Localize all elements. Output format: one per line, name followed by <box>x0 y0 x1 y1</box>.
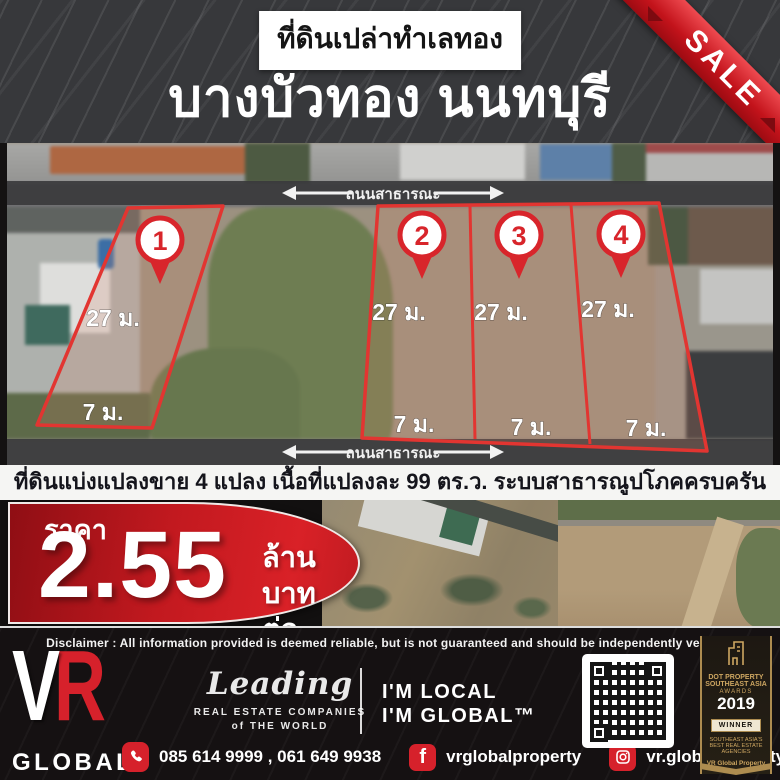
plot-number: 2 <box>414 221 429 251</box>
facebook-handle[interactable]: vrglobalproperty <box>446 747 581 767</box>
leading-line1: REAL ESTATE COMPANIES <box>190 707 370 718</box>
plot-number: 1 <box>152 226 167 256</box>
page-title: บางบัวทอง นนทบุรี <box>0 56 780 140</box>
price-panel: ราคา 2.55 ล้านบาท ต่อแปลง <box>8 502 360 624</box>
im-global-line: I'M GLOBAL™ <box>382 704 535 728</box>
leading-re-companies-logo: Leading REAL ESTATE COMPANIES of THE WOR… <box>190 666 370 732</box>
land-sale-flyer: ที่ดินเปล่าทำเลทอง บางบัวทอง นนทบุรี SAL… <box>0 0 780 780</box>
plot-frontage-label: 7 ม. <box>511 414 552 440</box>
phone-icon[interactable] <box>122 742 149 772</box>
footer: Disclaimer : All information provided is… <box>0 628 780 780</box>
logo-letter-v: V <box>12 644 60 729</box>
award-line1: DOT PROPERTY <box>702 674 770 681</box>
vr-global-property-logo: R V GLOBAL P R O P E R T Y <box>12 644 172 734</box>
plot-overlay: ถนนสาธารณะ ถนนสาธารณะ 1 2 <box>0 143 780 465</box>
qr-finder-icon <box>590 724 608 742</box>
im-local-line: I'M LOCAL <box>382 680 535 704</box>
award-line5: BEST REAL ESTATE AGENCIES <box>702 743 770 755</box>
summary-strip: ที่ดินแบ่งแปลงขาย 4 แปลง เนื้อที่แปลงละ … <box>0 465 780 500</box>
facebook-icon[interactable]: f <box>409 744 436 771</box>
road-label-top: ถนนสาธารณะ <box>346 186 441 203</box>
award-year: 2019 <box>702 695 770 714</box>
plot-frontage-label: 7 ม. <box>394 411 435 437</box>
plot-depth-label: 27 ม. <box>581 296 635 322</box>
plot-number: 3 <box>511 221 526 251</box>
aerial-photo: ถนนสาธารณะ ถนนสาธารณะ 1 2 <box>0 143 780 465</box>
plot-frontage-label: 7 ม. <box>626 415 667 441</box>
plot-depth-label: 27 ม. <box>474 299 528 325</box>
award-winner-badge: WINNER <box>711 719 761 732</box>
phone-numbers[interactable]: 085 614 9999 , 061 649 9938 <box>159 747 381 767</box>
leading-line2: of THE WORLD <box>190 721 370 732</box>
price-section: ราคา 2.55 ล้านบาท ต่อแปลง <box>0 500 780 628</box>
plot-depth-label: 27 ม. <box>86 305 140 331</box>
plot-frontage-label: 7 ม. <box>83 399 124 425</box>
price-amount: 2.55 <box>38 518 227 613</box>
price-units: ล้านบาท ต่อแปลง <box>262 540 358 628</box>
header: ที่ดินเปล่าทำเลทอง บางบัวทอง นนทบุรี SAL… <box>0 0 780 143</box>
contact-bar: 085 614 9999 , 061 649 9938 f vrglobalpr… <box>122 742 780 772</box>
award-badge: DOT PROPERTY SOUTHEAST ASIA AWARDS 2019 … <box>700 636 772 774</box>
leading-script-text: Leading <box>190 666 370 702</box>
road-label-bottom: ถนนสาธารณะ <box>346 445 441 462</box>
award-line4: SOUTHEAST ASIA'S <box>702 737 770 743</box>
building-icon <box>725 640 747 666</box>
logo-global-text: GLOBAL <box>12 749 134 777</box>
plot-depth-label: 27 ม. <box>372 299 426 325</box>
im-local-im-global: I'M LOCAL I'M GLOBAL™ <box>382 680 535 728</box>
qr-code <box>582 654 674 748</box>
land-photo-2 <box>558 500 780 628</box>
qr-finder-icon <box>648 662 666 680</box>
award-line2: SOUTHEAST ASIA <box>702 681 770 688</box>
price-unit-line1: ล้านบาท <box>262 540 358 612</box>
logo-letter-r: R <box>54 644 106 729</box>
plot-number: 4 <box>613 220 628 250</box>
photo-frame <box>773 143 780 465</box>
divider <box>360 668 362 734</box>
photo-frame <box>0 143 7 465</box>
qr-finder-icon <box>590 662 608 680</box>
